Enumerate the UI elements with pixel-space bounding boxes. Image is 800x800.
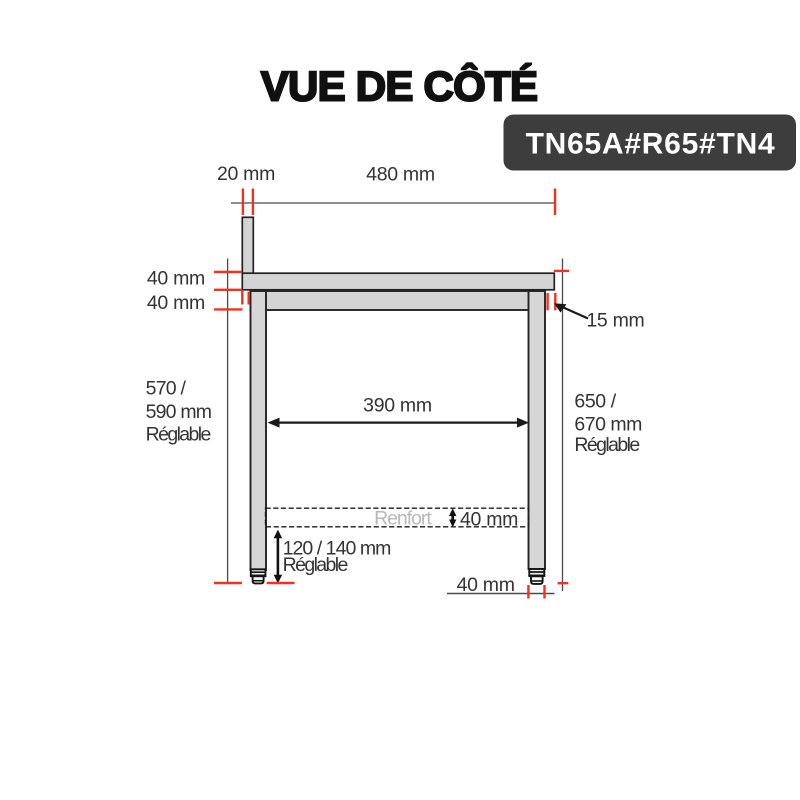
- svg-text:570 /: 570 /: [146, 378, 187, 400]
- svg-text:Renfort: Renfort: [374, 508, 432, 530]
- svg-text:650 /: 650 /: [574, 391, 616, 413]
- svg-text:40 mm: 40 mm: [457, 574, 515, 596]
- svg-text:TN65A#R65#TN4: TN65A#R65#TN4: [526, 127, 776, 160]
- svg-text:VUE DE CÔTÉ: VUE DE CÔTÉ: [261, 62, 537, 110]
- svg-text:20 mm: 20 mm: [217, 163, 275, 185]
- svg-text:670 mm: 670 mm: [574, 414, 641, 436]
- svg-text:40 mm: 40 mm: [147, 292, 205, 314]
- svg-text:40 mm: 40 mm: [460, 508, 518, 530]
- svg-text:480 mm: 480 mm: [366, 164, 435, 186]
- svg-text:590 mm: 590 mm: [146, 401, 212, 423]
- svg-text:Réglable: Réglable: [574, 434, 639, 456]
- svg-text:40 mm: 40 mm: [147, 268, 205, 290]
- svg-text:Réglable: Réglable: [283, 554, 348, 576]
- svg-text:Réglable: Réglable: [146, 424, 211, 446]
- svg-text:15 mm: 15 mm: [586, 309, 644, 331]
- svg-text:390 mm: 390 mm: [363, 395, 432, 417]
